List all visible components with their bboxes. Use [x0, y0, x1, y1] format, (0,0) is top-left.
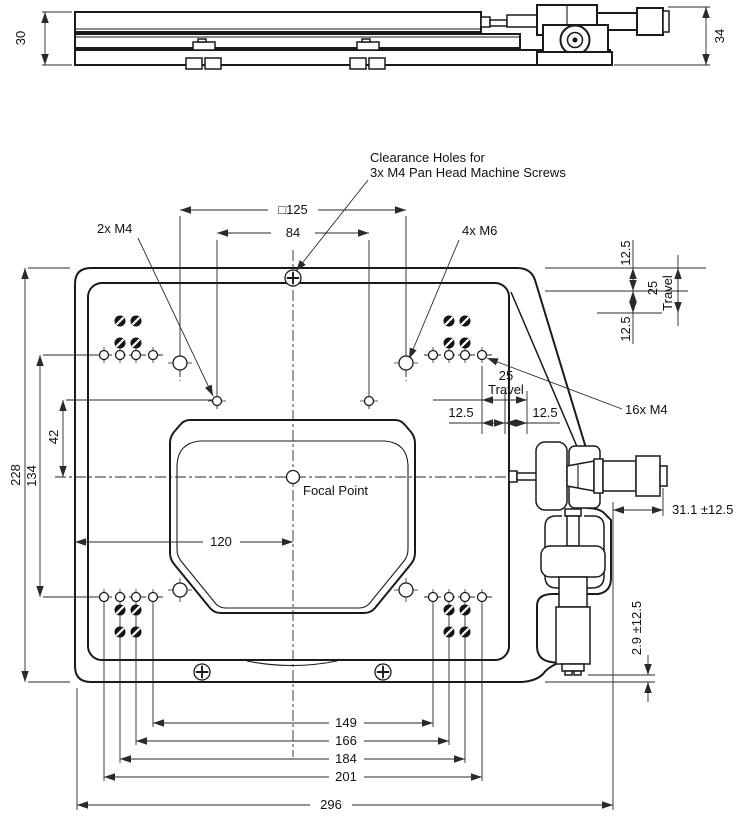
pan-head-screw [194, 664, 210, 680]
y-mic-tip [574, 671, 581, 675]
cluster-half-right: 12.5 [532, 405, 557, 420]
label-2x-m4: 2x M4 [97, 221, 132, 236]
edge-half-top: 12.5 [618, 240, 633, 265]
dim-square125-label: □125 [278, 202, 308, 217]
x-mic-thimble [636, 456, 660, 496]
dim-120-label: 120 [210, 534, 232, 549]
cluster-travel-word: Travel [488, 382, 524, 397]
stage-drawing: 30 34 [0, 0, 750, 817]
side-foot [186, 58, 202, 69]
x-mic-barrel [603, 461, 636, 491]
label-4x-m6: 4x M6 [462, 223, 497, 238]
x-mic-shaft [517, 473, 537, 480]
side-foot [369, 58, 385, 69]
x-mic-knob [536, 442, 567, 510]
edge-travel-word: Travel [660, 275, 675, 311]
label-16x-m4: 16x M4 [625, 402, 668, 417]
pan-head-screw [375, 664, 391, 680]
side-mic-rod [490, 20, 507, 26]
y-mic-barrel [559, 577, 587, 607]
dim-228-label: 228 [8, 464, 23, 486]
side-rail-screw [198, 39, 206, 42]
side-view: 30 34 [13, 5, 727, 69]
leader-clearance [296, 180, 368, 271]
x-mic-ring [594, 459, 603, 493]
side-mic-base [537, 52, 612, 65]
side-foot [205, 58, 221, 69]
x-mic-cone [567, 461, 594, 491]
dim-84-label: 84 [286, 225, 300, 240]
dim-166-label: 166 [335, 733, 357, 748]
cluster-half-left: 12.5 [448, 405, 473, 420]
side-knob-dot [573, 38, 578, 43]
dim-34-label: 34 [712, 29, 727, 43]
dim-y-extension-label: 2.9 ±12.5 [629, 601, 644, 655]
y-mic-stem [567, 516, 579, 546]
x-mic-tip [509, 471, 517, 482]
clearance-note-line1: Clearance Holes for [370, 150, 486, 165]
dim-30-label: 30 [13, 31, 28, 45]
clearance-note-line2: 3x M4 Pan Head Machine Screws [370, 165, 566, 180]
focal-point-label: Focal Point [303, 483, 368, 498]
dim-134-label: 134 [24, 465, 39, 487]
side-mic-spindle [507, 15, 537, 27]
dim-x-extension-label: 31.1 ±12.5 [672, 502, 733, 517]
dim-184-label: 184 [335, 751, 357, 766]
y-mic-nub [565, 509, 581, 516]
side-rail-screw [362, 39, 370, 42]
side-mic-cap [663, 11, 669, 32]
edge-half-bottom: 12.5 [618, 316, 633, 341]
y-mic-thimble [556, 607, 590, 664]
cluster-travel-value: 25 [499, 368, 513, 383]
side-foot [350, 58, 366, 69]
side-mic-contact [481, 17, 490, 27]
dim-149-label: 149 [335, 715, 357, 730]
dim-201-label: 201 [335, 769, 357, 784]
dim-296-label: 296 [320, 797, 342, 812]
side-mid-plate [75, 34, 520, 48]
side-mic-thimble [637, 8, 663, 35]
side-rail-block [193, 42, 215, 50]
focal-point-mark [287, 471, 300, 484]
side-base-plate [75, 50, 610, 65]
plan-view: Clearance Holes for 3x M4 Pan Head Machi… [8, 150, 733, 812]
y-mic-knob [541, 546, 605, 577]
dim-42-label: 42 [46, 430, 61, 444]
edge-travel-value: 25 [645, 281, 660, 295]
aperture-outline [170, 420, 415, 613]
x-mic-cap [660, 466, 667, 486]
y-mic-tip [565, 671, 572, 675]
y-mic-cap [562, 664, 584, 671]
technical-drawing-page: 30 34 [0, 0, 750, 817]
pan-head-screw [285, 270, 301, 286]
side-rail-block [357, 42, 379, 50]
